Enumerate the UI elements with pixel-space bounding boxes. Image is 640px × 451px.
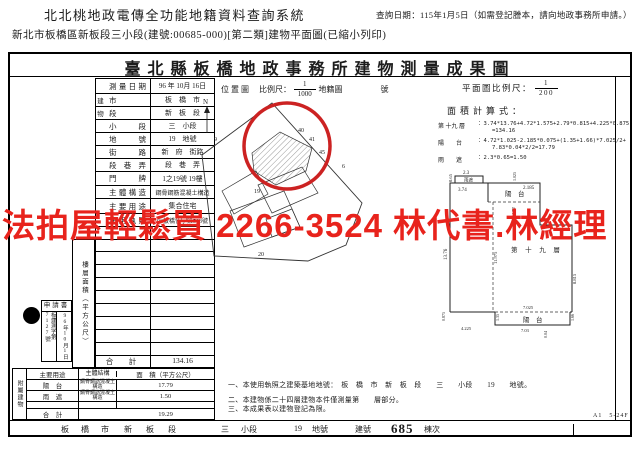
floor-plan: 2.3 0.65 3.74 2.185 1.025 4.72 13.76 11.… bbox=[435, 168, 630, 360]
empty-floor-row bbox=[95, 265, 215, 278]
floor-total-row: 合 計 134.16 bbox=[95, 356, 215, 368]
table-row: 測量日期96 年 10月 16日 bbox=[96, 79, 215, 94]
dim-3.74: 3.74 bbox=[458, 188, 467, 193]
annex-row-balcony: 陽 台 鋼骨鋼筋混凝土構造 17.79 bbox=[27, 380, 214, 391]
bottom-item: 三 bbox=[221, 424, 229, 435]
query-date: 查詢日期：115年1月5日（如需登記謄本，請向地政事務所申請。） bbox=[376, 9, 632, 21]
parcel-number: 20 bbox=[258, 252, 264, 258]
empty-floor-row bbox=[95, 317, 215, 330]
cadastral-map-label: 地籍圖 bbox=[319, 84, 343, 95]
dim-0.875: 0.875 bbox=[441, 312, 446, 321]
bottom-item: 建號 bbox=[355, 424, 371, 435]
plan-scale-fraction: 1 200 bbox=[535, 79, 558, 96]
table-row: 主體構造鋼骨鋼筋混凝土構造 bbox=[96, 186, 215, 199]
target-building-hatched bbox=[252, 132, 312, 185]
dim-1.025: 1.025 bbox=[512, 172, 517, 181]
system-title: 北北桃地政電傳全功能地籍資料查詢系統 bbox=[44, 5, 305, 24]
punch-hole-mark bbox=[23, 307, 40, 324]
dim-1.66: 1.66 bbox=[570, 314, 575, 321]
bottom-item: 板 bbox=[61, 424, 69, 435]
parcel-number: 9 bbox=[214, 137, 217, 143]
application-stamp: 申請書 板建測字第7127號 96年10月1日 bbox=[41, 300, 72, 362]
bottom-item: 段 bbox=[168, 424, 176, 435]
empty-floor-row bbox=[95, 330, 215, 343]
table-row: 段巷弄段 巷 弄 bbox=[96, 159, 215, 172]
svg-text:N: N bbox=[203, 98, 208, 106]
parcel-number: 41 bbox=[309, 137, 315, 143]
empty-floor-row bbox=[95, 343, 215, 356]
bottom-item: 地號 bbox=[312, 424, 328, 435]
dim-2.185: 2.185 bbox=[523, 186, 535, 191]
annex-header-row: 主要用途 主體結構 面 積（平方公尺） bbox=[27, 369, 214, 380]
table-row: 街路新 府 街路 bbox=[96, 146, 215, 159]
empty-floor-row bbox=[95, 278, 215, 291]
parcel-number: 40 bbox=[298, 128, 304, 134]
red-watermark-text: 法拍屋輕鬆買 2266-3524 林代書.林經理 bbox=[2, 199, 640, 247]
dim-11.975: 11.975 bbox=[493, 251, 498, 264]
empty-floor-row bbox=[95, 291, 215, 304]
dim-13.76: 13.76 bbox=[444, 248, 449, 260]
annex-row-canopy: 雨 遮 鋼骨鋼筋混凝土構造 1.50 bbox=[27, 391, 214, 402]
cadastral-no-label: 號 bbox=[381, 84, 389, 95]
dim-8.815: 8.815 bbox=[572, 273, 577, 284]
canopy-label: 雨遮 bbox=[464, 177, 473, 184]
building-number: 685 bbox=[391, 421, 414, 437]
table-row: 地號19 地號 bbox=[96, 133, 215, 146]
empty-floor-row bbox=[95, 252, 215, 265]
table-row: 小段三 小段 bbox=[96, 120, 215, 133]
dim-0.65: 0.65 bbox=[448, 173, 453, 182]
document-page: 北北桃地政電傳全功能地籍資料查詢系統 查詢日期：115年1月5日（如需登記謄本，… bbox=[0, 0, 640, 451]
note-3: 三、本成果表以建物登記為限。 bbox=[228, 404, 330, 414]
bottom-item: 小段 bbox=[241, 424, 257, 435]
annex-building-table: 附屬建物 主要用途 主體結構 面 積（平方公尺） 陽 台 鋼骨鋼筋混凝土構造 1… bbox=[12, 368, 215, 420]
bottom-balcony-label: 陽 台 bbox=[523, 315, 543, 324]
annex-section-label: 附屬建物 bbox=[13, 369, 27, 419]
parcel-number: 19 bbox=[254, 189, 260, 195]
bottom-item: 新 bbox=[124, 424, 132, 435]
plan-scale-header: 平面圖比例尺： 1 200 bbox=[462, 80, 561, 96]
table-row: 建市板 橋 市 bbox=[96, 94, 215, 107]
dim-2.3: 2.3 bbox=[463, 171, 470, 176]
area-calc-block: 第 十九 層 ：3.74*13.76+4.72*1.575+2.79*0.815… bbox=[438, 121, 636, 166]
table-row: 物段新 板 段 bbox=[96, 107, 215, 120]
bottom-item: 橋 bbox=[81, 424, 89, 435]
floor-area-column-header: 樓層面積（平方公尺） bbox=[72, 239, 95, 368]
calc-line-floor19: 第 十九 層 ：3.74*13.76+4.72*1.575+2.79*0.815… bbox=[438, 121, 636, 136]
annex-total-row: 合 計 19.29 bbox=[27, 409, 214, 419]
dim-7.025: 7.025 bbox=[523, 305, 534, 310]
document-subtitle: 新北市板橋區新板段三小段(建號:00685-000)[第二類]建物平面圖(已縮小… bbox=[12, 27, 386, 42]
bottom-item: 板 bbox=[146, 424, 154, 435]
calc-line-canopy: 雨 遮 ：2.3*0.65=1.50 bbox=[438, 155, 636, 164]
area-calc-title: 面積計算式： bbox=[447, 104, 525, 117]
empty-floor-row bbox=[95, 304, 215, 317]
dim-0.04: 0.04 bbox=[543, 331, 548, 338]
title-rule bbox=[10, 76, 630, 77]
bottom-item: 市 bbox=[101, 424, 109, 435]
floor-area-table: 合 計 134.16 bbox=[95, 239, 215, 368]
parcel-number: 6 bbox=[342, 164, 345, 170]
dim-4.225: 4.225 bbox=[461, 326, 472, 331]
table-row: 門牌1之19號 19樓 bbox=[96, 172, 215, 186]
bottom-id-strip: 板 橋 市 新 板 段 三 小段 19 地號 建號 685 棟次 bbox=[10, 420, 630, 435]
dim-7.03: 7.03 bbox=[521, 328, 530, 333]
scale-label: 比例尺： bbox=[259, 84, 291, 95]
location-map-header: 位置圖 比例尺： 1 1000 地籍圖 號 bbox=[221, 82, 389, 96]
note-1: 一、本使用執照之建築基地地號： 板 橋 市 新 板 段 三 小段 19 地號。 bbox=[228, 380, 531, 390]
calc-line-balcony: 陽 台 ：4.72*1.025-2.185*0.075+(1.35+1.66)*… bbox=[438, 138, 636, 153]
annex-blank-row bbox=[27, 402, 214, 409]
north-arrow: N bbox=[203, 98, 210, 133]
bottom-item: 19 bbox=[294, 424, 302, 433]
location-map-label: 位置圖 bbox=[221, 84, 251, 95]
application-doc-no: 板建測字第7127號 bbox=[42, 312, 57, 361]
top-balcony-label: 陽 台 bbox=[505, 189, 525, 198]
bottom-item: 棟次 bbox=[424, 424, 440, 435]
dim-1.35: 1.35 bbox=[495, 314, 500, 321]
parcel-number: 45 bbox=[319, 150, 325, 156]
strip-divider bbox=[573, 424, 574, 435]
application-date: 96年10月1日 bbox=[57, 312, 71, 361]
form-code: A1 5-24F bbox=[593, 410, 629, 419]
